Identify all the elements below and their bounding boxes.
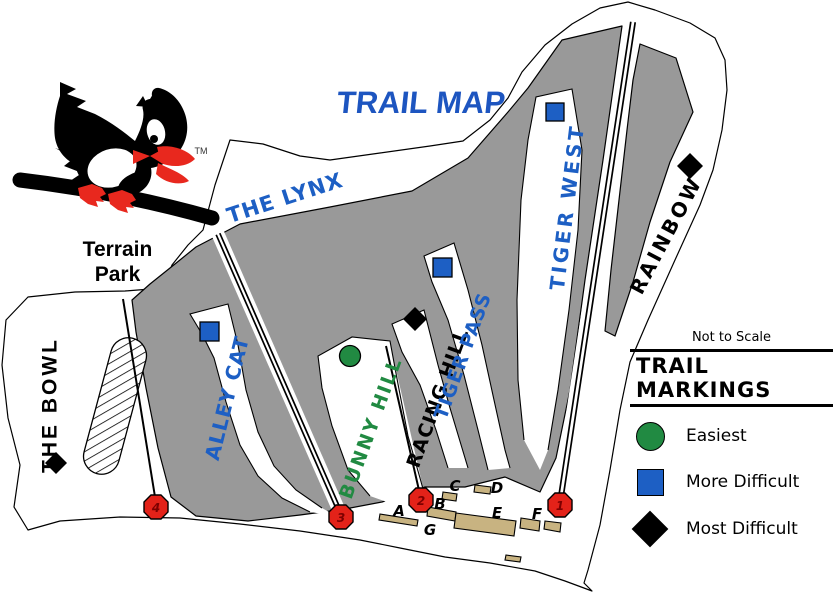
not-to-scale-note: Not to Scale: [630, 330, 833, 345]
lift-marker-number: 4: [151, 501, 160, 515]
building-letter-g: G: [424, 521, 436, 539]
legend-panel: Not to Scale TRAIL MARKINGS Easiest More…: [630, 330, 833, 549]
building-letter-c: C: [449, 477, 460, 495]
penguin-beak-lower: [156, 163, 189, 183]
building-letter-e: E: [492, 504, 503, 522]
more-difficult-icon: [433, 258, 452, 277]
building-d: [474, 485, 491, 494]
most-difficult-icon: [632, 511, 669, 548]
lift-marker-1: 1: [548, 493, 572, 517]
lift-marker-4: 4: [144, 495, 168, 519]
lift-marker-number: 3: [337, 511, 345, 525]
easiest-icon: [636, 422, 665, 451]
penguin-beak-upper: [157, 146, 195, 166]
legend-rule-bottom: [630, 404, 833, 407]
lift-marker-number: 1: [556, 499, 564, 513]
legend-item-label: Easiest: [686, 426, 747, 446]
trademark-symbol: TM: [195, 146, 208, 156]
lift-marker-2: 2: [409, 488, 433, 512]
legend-item-most-difficult: Most Difficult: [630, 509, 833, 549]
legend-item-label: Most Difficult: [686, 519, 798, 539]
lift-marker-3: 3: [329, 505, 353, 529]
terrain-park-label: Terrain Park: [60, 237, 175, 287]
easiest-icon: [340, 346, 361, 367]
legend-item-easiest: Easiest: [630, 416, 833, 456]
building-letter-a: A: [392, 502, 405, 520]
penguin-logo: [20, 82, 212, 218]
trail-map-page: 1 2 3 4 THE LYNX TIGER WEST RAINBOW ALLE…: [0, 0, 833, 593]
building-letter-f: F: [532, 505, 543, 523]
legend-title: TRAIL MARKINGS: [630, 352, 833, 404]
legend-item-label: More Difficult: [686, 472, 799, 492]
legend-item-more-difficult: More Difficult: [630, 462, 833, 502]
trail-label-the-bowl: THE BOWL: [39, 337, 62, 473]
lift-marker-number: 2: [417, 494, 425, 508]
page-title: TRAIL MAP: [335, 85, 507, 121]
more-difficult-icon: [546, 103, 564, 121]
terrain-park-text: Terrain Park: [83, 238, 153, 286]
building-letter-d: D: [491, 479, 503, 497]
more-difficult-icon: [637, 469, 664, 496]
penguin-pupil: [150, 135, 158, 143]
more-difficult-icon: [200, 322, 219, 341]
building-letter-b: B: [434, 495, 445, 513]
